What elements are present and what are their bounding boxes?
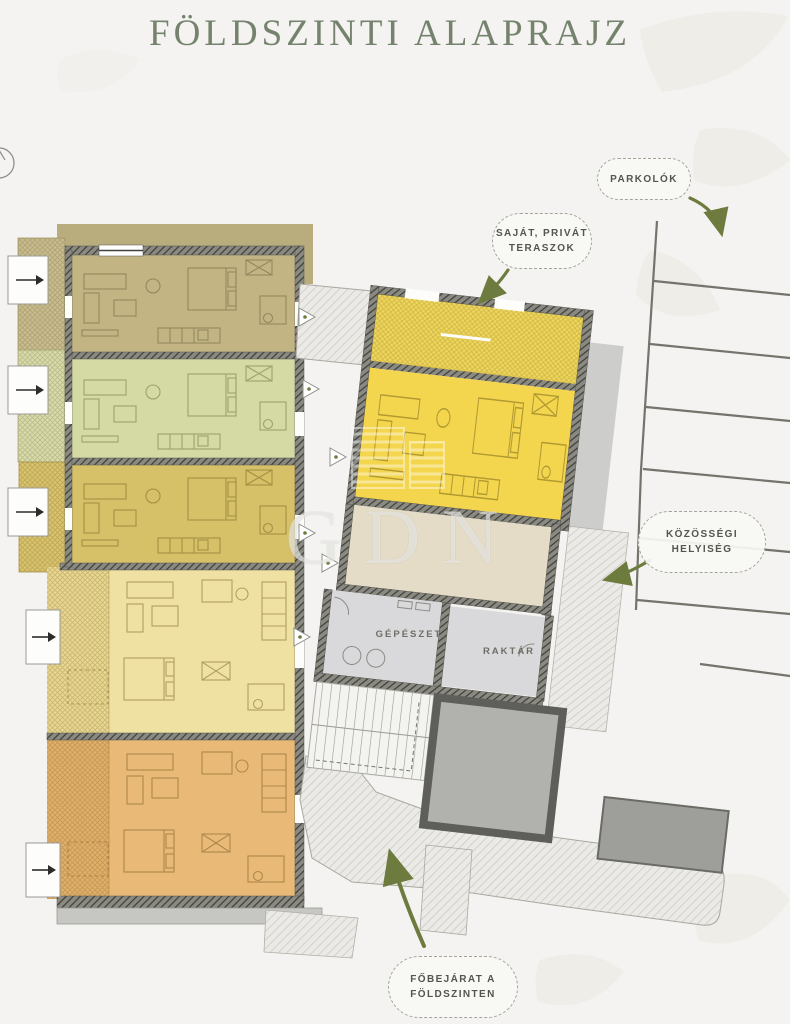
apartment-2-green bbox=[65, 356, 302, 462]
core-block bbox=[423, 697, 563, 838]
entrance-walkway bbox=[420, 845, 472, 935]
apartment-1-tan bbox=[65, 250, 302, 356]
terrace-slab-block bbox=[597, 797, 728, 873]
floor-plan-page: FÖLDSZINTI ALAPRAJZ PARKOLÓK SAJÁT, PRIV… bbox=[0, 0, 790, 1024]
parking-callout-label: PARKOLÓK bbox=[610, 172, 678, 187]
apartment-4-pale-yellow bbox=[47, 567, 302, 737]
apartment-5-orange bbox=[47, 737, 302, 899]
north-symbol-icon bbox=[0, 144, 14, 182]
mechanical-room-label: GÉPÉSZET bbox=[366, 629, 452, 640]
parking-arrow-icon bbox=[690, 198, 721, 231]
entrance-callout: FŐBEJÁRAT A FÖLDSZINTEN bbox=[388, 956, 518, 1018]
terraces-arrow-icon bbox=[482, 270, 508, 300]
parking-callout: PARKOLÓK bbox=[597, 158, 691, 200]
community-callout: KÖZÖSSÉGI HELYISÉG bbox=[638, 511, 766, 573]
storage-room-label: RAKTÁR bbox=[466, 646, 552, 657]
apartment-3-gold bbox=[65, 462, 302, 567]
base-hatch-patch bbox=[264, 910, 358, 958]
stairs bbox=[307, 682, 434, 781]
terraces-callout: SAJÁT, PRIVÁT TERASZOK bbox=[492, 213, 592, 269]
page-title: FÖLDSZINTI ALAPRAJZ bbox=[0, 12, 780, 55]
community-terrace bbox=[546, 526, 628, 732]
